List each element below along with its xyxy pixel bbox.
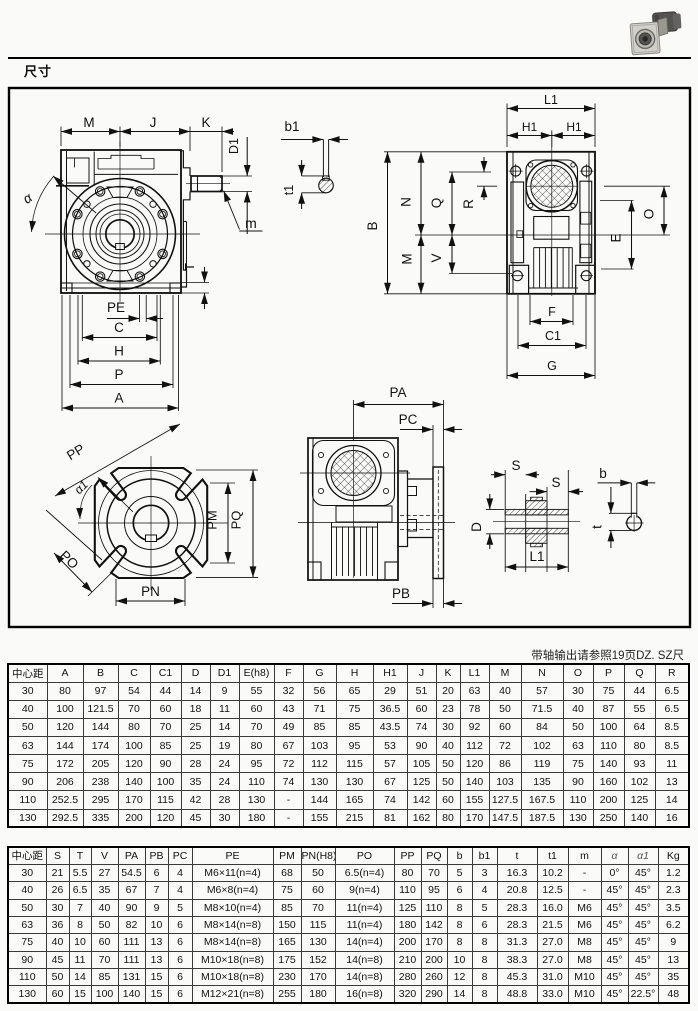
svg-text:D: D xyxy=(469,522,484,532)
svg-text:PA: PA xyxy=(389,385,406,400)
svg-text:PQ: PQ xyxy=(229,511,244,530)
svg-text:V: V xyxy=(429,253,444,262)
svg-text:K: K xyxy=(201,115,210,130)
svg-text:α1: α1 xyxy=(71,477,90,496)
svg-text:C1: C1 xyxy=(545,329,561,343)
svg-text:t: t xyxy=(590,525,605,529)
svg-text:S: S xyxy=(511,458,520,473)
svg-text:P: P xyxy=(114,367,123,382)
svg-text:B: B xyxy=(365,221,380,230)
svg-text:L1: L1 xyxy=(529,549,544,564)
svg-text:J: J xyxy=(150,115,157,130)
svg-text:L1: L1 xyxy=(544,93,558,107)
svg-text:T: T xyxy=(182,263,197,271)
svg-text:N: N xyxy=(399,197,414,207)
svg-text:PE: PE xyxy=(107,300,125,315)
svg-text:R: R xyxy=(461,199,476,209)
svg-text:C: C xyxy=(114,320,124,335)
svg-text:PB: PB xyxy=(392,586,410,601)
svg-text:PO: PO xyxy=(57,548,81,572)
svg-text:E: E xyxy=(609,233,624,242)
svg-text:M: M xyxy=(400,253,415,264)
svg-text:α: α xyxy=(20,189,36,206)
svg-text:Q: Q xyxy=(429,198,444,209)
svg-text:b1: b1 xyxy=(284,119,299,134)
svg-text:b: b xyxy=(599,466,607,481)
svg-text:A: A xyxy=(114,391,123,406)
svg-text:m: m xyxy=(245,215,257,231)
svg-text:PN: PN xyxy=(141,584,160,599)
svg-text:D1: D1 xyxy=(227,138,241,154)
svg-text:PM: PM xyxy=(205,510,220,530)
svg-text:PP: PP xyxy=(64,441,87,463)
svg-text:H: H xyxy=(114,344,124,359)
svg-text:H1: H1 xyxy=(566,120,582,134)
svg-text:t1: t1 xyxy=(282,185,296,195)
svg-text:S: S xyxy=(551,475,560,490)
svg-text:H1: H1 xyxy=(522,120,538,134)
svg-text:G: G xyxy=(547,359,557,373)
svg-text:PC: PC xyxy=(399,412,418,427)
svg-text:F: F xyxy=(548,305,556,319)
svg-text:O: O xyxy=(642,209,657,220)
svg-text:M: M xyxy=(83,115,94,130)
